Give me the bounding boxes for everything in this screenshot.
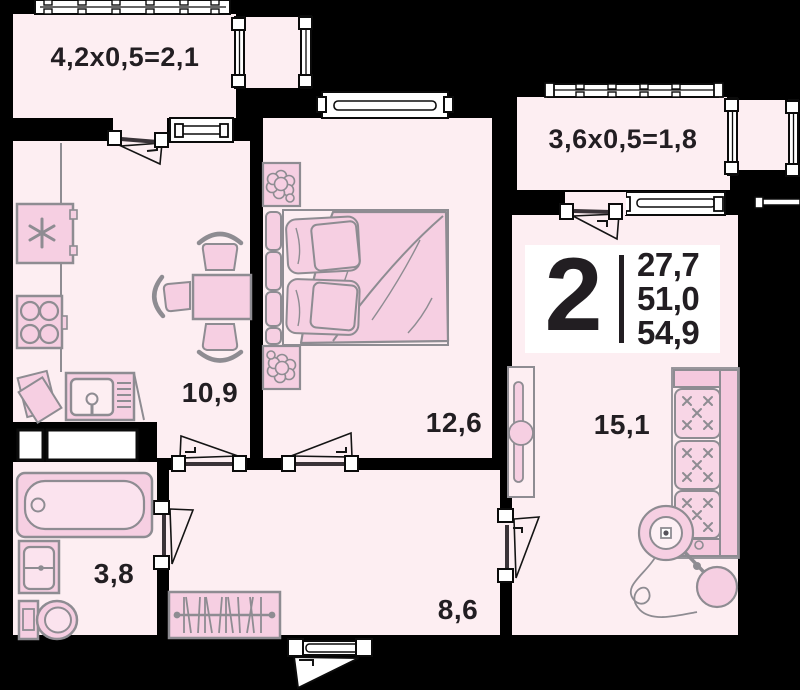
bedroom-area-label: 12,6 (404, 407, 504, 439)
summary-badge: 2 27,7 51,0 54,9 (525, 245, 720, 353)
window-living (621, 192, 725, 215)
coat-rack (169, 592, 280, 638)
bed (266, 210, 448, 345)
window-balcony-right-top (545, 83, 723, 97)
balcony-right-label: 3,6x0,5=1,8 (518, 124, 728, 155)
dining-table (193, 275, 251, 319)
window-bedroom (317, 92, 453, 118)
room-balcony-annex-right (737, 100, 790, 170)
mirror (508, 367, 534, 497)
window-neighbour-stub (755, 197, 800, 208)
room-balcony-annex-left (244, 17, 302, 88)
toilet (19, 601, 77, 639)
nightstand-top (263, 163, 300, 206)
hallway-furniture (169, 592, 280, 638)
washbasin (19, 541, 59, 593)
room-count: 2 (525, 247, 619, 343)
wall-niche-small (18, 430, 43, 460)
hallway-area-label: 8,6 (408, 594, 508, 626)
kitchen-sink (66, 373, 144, 420)
bathroom-area-label: 3,8 (64, 558, 164, 590)
nightstand-bottom (263, 346, 300, 389)
balcony-left-label: 4,2x0,5=2,1 (20, 42, 230, 73)
area-main-value: 51,0 (637, 282, 699, 316)
kitchen-area-label: 10,9 (160, 377, 260, 409)
badge-divider (619, 255, 624, 343)
window-kitchen (170, 118, 233, 142)
fridge (17, 204, 77, 263)
wall-niche-large (47, 430, 137, 460)
badge-areas: 27,7 51,0 54,9 (637, 248, 699, 350)
window-balcony-left-top (35, 0, 230, 14)
bathtub (17, 473, 152, 537)
area-living-value: 27,7 (637, 248, 699, 282)
entrance-door (288, 639, 372, 688)
window-annex-left-right (299, 16, 312, 88)
stove (17, 296, 67, 348)
floor-plan: 4,2x0,5=2,1 3,6x0,5=1,8 10,9 12,6 15,1 3… (0, 0, 800, 690)
living-area-label: 15,1 (572, 409, 672, 441)
area-total-value: 54,9 (637, 316, 699, 350)
headboard (266, 212, 281, 344)
